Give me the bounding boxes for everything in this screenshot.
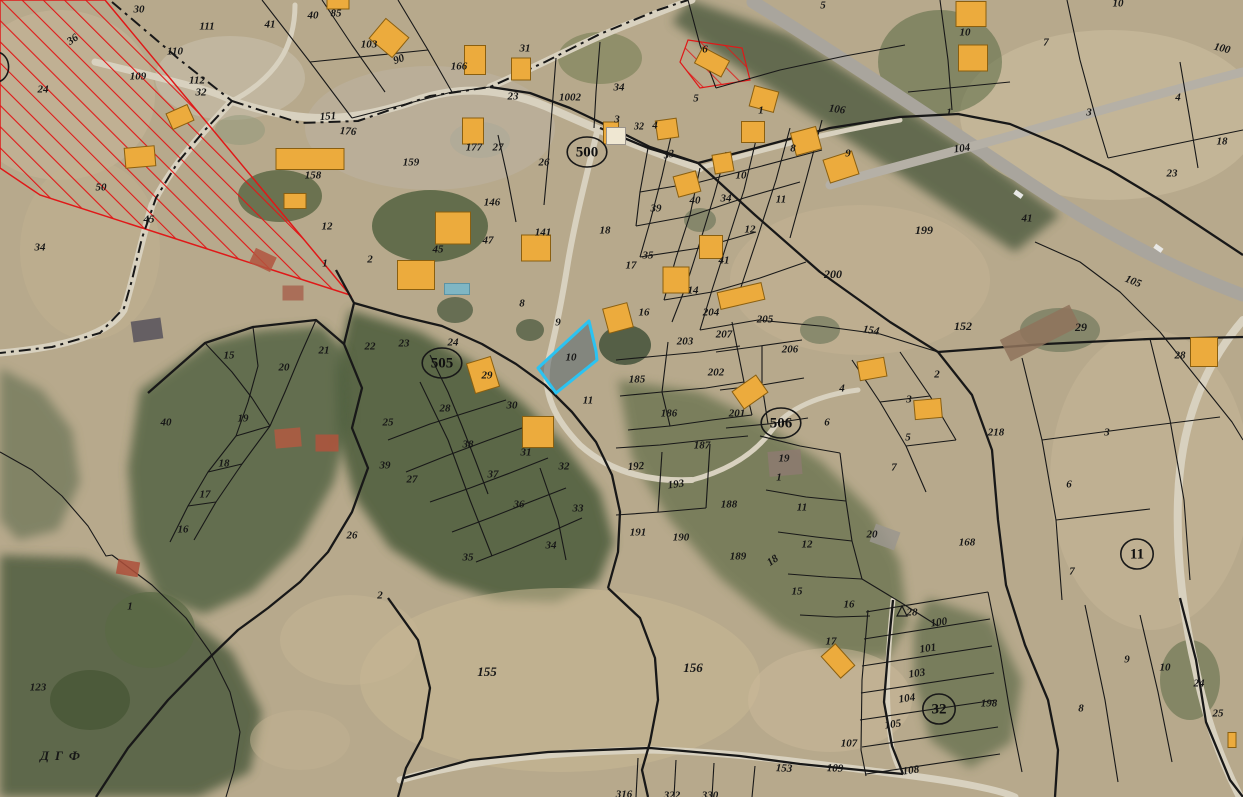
parcel-label: 205 — [756, 314, 774, 326]
parcel-label: 23 — [507, 91, 520, 103]
parcel-label: 39 — [650, 203, 663, 215]
parcel-label: 111 — [199, 21, 214, 33]
building-footprint — [607, 128, 626, 145]
parcel-label: ДГФ — [39, 748, 86, 763]
parcel-label: 22 — [364, 341, 377, 353]
parcel-label: 40 — [689, 195, 702, 207]
parcel-label: 4 — [651, 120, 658, 132]
parcel-label: 109 — [826, 762, 844, 775]
building-footprint — [742, 122, 765, 143]
parcel-label: 18 — [219, 458, 231, 470]
parcel-label: 166 — [451, 61, 468, 73]
parcel-label: 50 — [96, 182, 108, 194]
parcel-label: 190 — [673, 532, 690, 544]
parcel-label: 26 — [538, 157, 551, 169]
parcel-label: 5 — [820, 0, 826, 12]
map-canvas: 3011141408536110109241123210390166312310… — [0, 0, 1243, 797]
parcel-label: 11 — [797, 502, 807, 514]
parcel-label: 203 — [676, 336, 694, 348]
parcel-label: 185 — [629, 374, 646, 386]
zone-number: 32 — [932, 701, 947, 717]
terrain-patch — [105, 592, 195, 668]
parcel-label: 9 — [555, 317, 561, 329]
house-roof — [131, 318, 164, 343]
parcel-label: 41 — [718, 255, 730, 267]
parcel-label: 30 — [506, 400, 519, 412]
parcel-label: 12 — [802, 539, 814, 551]
parcel-label: 206 — [781, 344, 799, 356]
parcel-label: 35 — [642, 250, 655, 262]
parcel-label: 204 — [702, 307, 720, 319]
parcel-label: 16 — [178, 524, 190, 536]
parcel-label: 32 — [558, 461, 571, 473]
parcel-label: 104 — [953, 142, 971, 156]
parcel-label: 100 — [930, 615, 949, 629]
parcel-label: 330 — [701, 790, 719, 797]
parcel-label: 32 — [195, 87, 208, 99]
parcel-label: 9 — [845, 148, 851, 160]
building-footprint — [956, 2, 986, 27]
parcel-label: 109 — [130, 71, 147, 83]
parcel-label: 16 — [639, 307, 651, 319]
parcel-label: 7 — [1069, 566, 1075, 578]
parcel-label: 41 — [1021, 213, 1033, 225]
parcel-label: 31 — [520, 447, 532, 459]
parcel-label: 158 — [305, 170, 322, 182]
parcel-label: 188 — [721, 499, 738, 511]
terrain-patch — [50, 670, 130, 730]
parcel-label: 12 — [322, 221, 334, 233]
parcel-label: 34 — [720, 193, 733, 205]
terrain-patch — [1050, 330, 1243, 630]
zone-number: 505 — [431, 355, 454, 371]
zone-number: 11 — [1130, 546, 1144, 562]
parcel-label: 156 — [683, 660, 703, 675]
parcel-label: 17 — [626, 260, 638, 272]
parcel-label: 11 — [776, 194, 786, 206]
parcel-label: 28 — [906, 607, 919, 619]
parcel-label: 29 — [481, 370, 494, 382]
parcel-label: 186 — [661, 408, 678, 420]
parcel-label: 199 — [915, 223, 933, 237]
parcel-label: 10 — [1160, 662, 1172, 674]
parcel-label: 7 — [891, 462, 897, 474]
parcel-label: 2 — [376, 590, 383, 602]
parcel-label: 1 — [946, 107, 952, 119]
parcel-label: 45 — [432, 244, 445, 256]
parcel-label: 27 — [492, 142, 505, 154]
parcel-label: 39 — [379, 460, 392, 472]
parcel-label: 23 — [398, 338, 411, 350]
parcel-label: 192 — [627, 460, 645, 473]
parcel-label: 191 — [630, 527, 647, 539]
parcel-label: 103 — [908, 666, 927, 680]
building-footprint — [857, 357, 887, 380]
parcel-label: 1 — [758, 105, 764, 117]
building-footprint — [959, 45, 988, 71]
parcel-label: 35 — [462, 552, 475, 564]
parcel-label: 34 — [545, 540, 558, 552]
building-footprint — [436, 212, 471, 244]
parcel-label: 26 — [346, 530, 359, 542]
building-footprint — [522, 235, 551, 261]
parcel-label: 40 — [160, 417, 173, 429]
parcel-label: 5 — [905, 432, 911, 444]
building-footprint — [445, 284, 470, 295]
parcel-label: 202 — [707, 367, 725, 379]
parcel-label: 14 — [688, 285, 700, 297]
parcel-label: 189 — [730, 551, 747, 563]
parcel-label: 3 — [1085, 107, 1092, 119]
parcel-label: 106 — [828, 102, 847, 116]
parcel-label: 1 — [776, 472, 782, 484]
parcel-label: 18 — [1217, 136, 1229, 148]
map-viewport[interactable]: 3011141408536110109241123210390166312310… — [0, 0, 1243, 797]
parcel-label: 8 — [790, 143, 796, 155]
parcel-label: 2 — [933, 369, 940, 381]
parcel-label: 1002 — [559, 92, 582, 104]
building-footprint — [124, 146, 156, 169]
parcel-label: 4 — [1174, 92, 1181, 104]
parcel-label: 193 — [667, 478, 685, 492]
building-footprint — [712, 152, 734, 174]
parcel-label: 1 — [322, 258, 328, 270]
parcel-label: 24 — [37, 84, 50, 96]
terrain-patch — [280, 595, 420, 685]
parcel-label: 17 — [826, 636, 838, 648]
parcel-label: 3 — [905, 394, 912, 406]
parcel-label: 1 — [127, 601, 133, 613]
parcel-label: 19 — [238, 413, 250, 425]
parcel-label: 7 — [1043, 37, 1049, 49]
parcel-label: 141 — [535, 227, 552, 239]
house-roof — [316, 435, 339, 452]
parcel-label: 104 — [898, 691, 917, 705]
parcel-label: 10 — [1113, 0, 1125, 10]
parcel-label: 6 — [1066, 479, 1072, 491]
parcel-label: 5 — [693, 93, 699, 105]
parcel-label: 25 — [382, 417, 395, 429]
parcel-label: 25 — [1212, 708, 1225, 720]
parcel-label: 10 — [960, 27, 972, 39]
parcel-label: 45 — [143, 214, 156, 226]
parcel-label: 207 — [715, 329, 733, 341]
parcel-label: 200 — [823, 267, 842, 281]
building-footprint — [512, 58, 531, 80]
building-footprint — [663, 267, 689, 293]
parcel-label: 30 — [133, 4, 146, 16]
parcel-label: 8 — [1078, 703, 1084, 715]
parcel-label: 17 — [200, 489, 212, 501]
terrain-patch — [800, 316, 840, 344]
terrain-patch — [360, 588, 760, 772]
parcel-label: 31 — [519, 43, 531, 55]
parcel-label: 2 — [366, 254, 373, 266]
building-footprint — [465, 46, 486, 75]
parcel-label: 146 — [484, 197, 501, 209]
parcel-label: 154 — [862, 323, 881, 337]
terrain-patch — [516, 319, 544, 341]
building-footprint — [276, 149, 344, 170]
building-footprint — [523, 417, 554, 448]
parcel-label: 101 — [919, 641, 937, 655]
parcel-label: 6 — [702, 44, 708, 56]
parcel-label: 24 — [447, 337, 460, 349]
parcel-label: 316 — [615, 789, 633, 797]
parcel-label: 34 — [613, 82, 626, 94]
parcel-label: 11 — [583, 395, 593, 407]
parcel-label: 38 — [462, 439, 475, 451]
parcel-label: 18 — [600, 225, 612, 237]
parcel-label: 33 — [572, 503, 585, 515]
building-footprint — [914, 398, 943, 419]
parcel-label: 6 — [824, 417, 830, 429]
parcel-label: 85 — [331, 8, 343, 20]
parcel-label: 105 — [884, 717, 903, 731]
parcel-label: 28 — [439, 403, 452, 415]
parcel-label: 108 — [902, 763, 921, 777]
parcel-label: 34 — [34, 242, 47, 254]
parcel-label: 47 — [482, 235, 495, 247]
parcel-label: 123 — [30, 682, 47, 694]
parcel-label: 155 — [477, 664, 497, 679]
house-roof — [283, 286, 304, 301]
building-footprint — [398, 261, 435, 290]
parcel-label: 168 — [959, 537, 976, 549]
parcel-label: 218 — [987, 427, 1005, 439]
parcel-label: 15 — [224, 350, 236, 362]
parcel-label: 4 — [838, 383, 845, 395]
building-footprint — [1228, 733, 1236, 748]
parcel-label: 23 — [1166, 168, 1179, 180]
parcel-label: 3 — [1103, 427, 1110, 439]
parcel-label: 29 — [1074, 320, 1087, 334]
parcel-label: 110 — [167, 46, 183, 58]
parcel-label: 41 — [264, 19, 276, 31]
parcel-label: 322 — [663, 790, 681, 797]
parcel-label: 8 — [519, 298, 525, 310]
parcel-label: 10 — [736, 170, 748, 182]
parcel-label: 3 — [613, 114, 620, 126]
building-footprint — [655, 118, 678, 140]
parcel-label: 32 — [633, 121, 644, 132]
parcel-label: 198 — [981, 698, 998, 710]
house-roof — [274, 427, 302, 448]
parcel-label: 36 — [513, 499, 526, 511]
building-footprint — [463, 118, 484, 144]
parcel-label: 9 — [1124, 654, 1130, 666]
parcel-label: 107 — [841, 738, 858, 750]
parcel-label: 20 — [278, 362, 291, 374]
terrain-patch — [437, 297, 473, 323]
parcel-label: 12 — [745, 224, 757, 236]
parcel-label: 176 — [339, 125, 357, 138]
parcel-label: 40 — [307, 10, 320, 22]
parcel-label: 187 — [694, 440, 711, 452]
parcel-label: 27 — [406, 474, 419, 486]
zone-number: 500 — [576, 144, 599, 160]
parcel-label: 21 — [318, 345, 330, 357]
building-footprint — [1191, 338, 1218, 367]
parcel-label: 177 — [466, 142, 483, 154]
terrain-patch — [250, 710, 350, 770]
parcel-label: 24 — [1193, 678, 1206, 690]
parcel-label: 151 — [319, 110, 336, 123]
parcel-label: 19 — [779, 453, 791, 465]
building-footprint — [284, 194, 306, 209]
zone-number: 506 — [770, 415, 793, 431]
parcel-label: 201 — [728, 408, 746, 420]
parcel-label: 10 — [566, 352, 578, 364]
parcel-label: 37 — [487, 469, 500, 481]
parcel-label: 112 — [189, 75, 205, 87]
parcel-label: 103 — [361, 39, 378, 51]
parcel-label: 15 — [792, 586, 804, 598]
parcel-label: 20 — [866, 529, 879, 541]
parcel-label: 28 — [1174, 350, 1187, 362]
parcel-label: 153 — [775, 762, 793, 775]
parcel-label: 16 — [844, 599, 856, 611]
parcel-label: 159 — [403, 157, 420, 169]
parcel-label: 152 — [954, 319, 972, 333]
